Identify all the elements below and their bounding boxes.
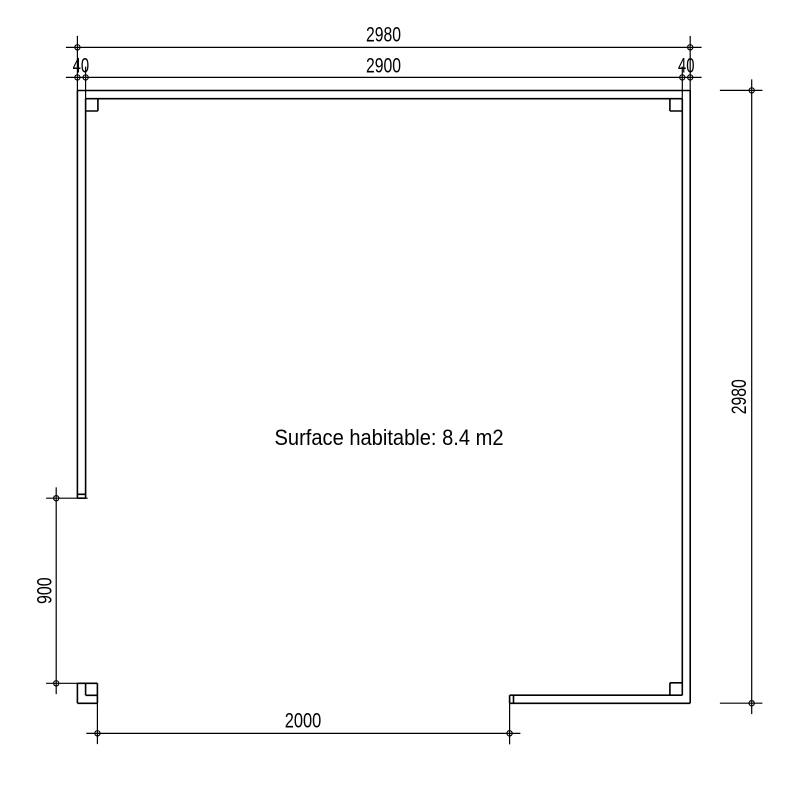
svg-text:40: 40 bbox=[678, 55, 695, 78]
svg-text:Surface habitable: 8.4 m2: Surface habitable: 8.4 m2 bbox=[275, 425, 504, 450]
svg-text:40: 40 bbox=[73, 55, 90, 78]
svg-text:2980: 2980 bbox=[728, 379, 751, 414]
svg-text:900: 900 bbox=[34, 577, 57, 604]
svg-text:2900: 2900 bbox=[366, 55, 401, 78]
svg-text:2980: 2980 bbox=[366, 24, 401, 47]
svg-text:2000: 2000 bbox=[285, 709, 322, 732]
